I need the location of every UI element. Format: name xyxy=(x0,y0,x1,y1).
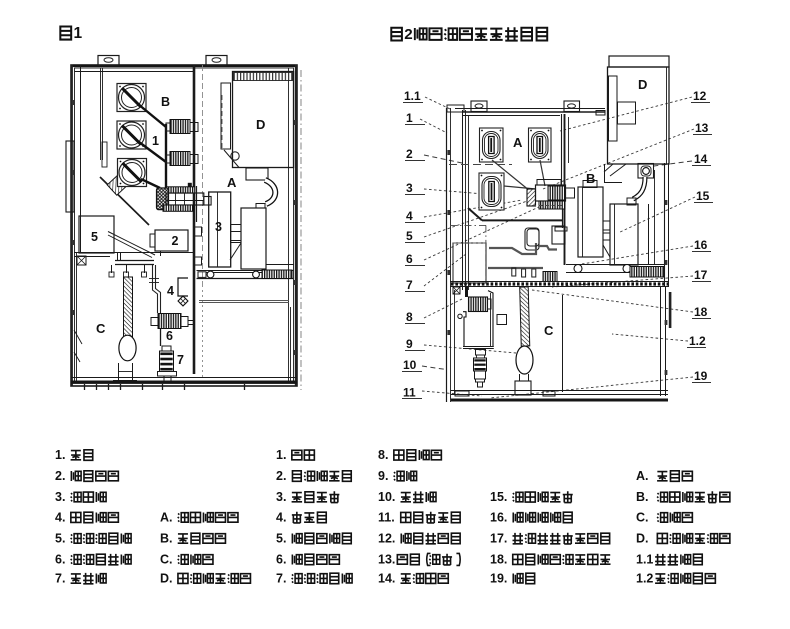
svg-text:1.2: 1.2 xyxy=(689,334,706,348)
svg-text:10.: 10. xyxy=(378,490,395,504)
svg-text:12.: 12. xyxy=(378,532,395,546)
svg-text:17: 17 xyxy=(694,268,708,282)
svg-text:D.: D. xyxy=(160,572,173,586)
svg-text:D.: D. xyxy=(636,532,649,546)
svg-text:14.: 14. xyxy=(378,572,395,586)
svg-text:19: 19 xyxy=(694,369,708,383)
svg-text:15.: 15. xyxy=(490,490,507,504)
svg-text:3.: 3. xyxy=(276,490,286,504)
svg-text:A: A xyxy=(227,175,237,190)
svg-text:1.: 1. xyxy=(276,448,286,462)
svg-text:1: 1 xyxy=(406,111,413,125)
svg-text:3: 3 xyxy=(406,181,413,195)
svg-text:A: A xyxy=(513,135,523,150)
svg-text:D: D xyxy=(256,117,265,132)
svg-text:A.: A. xyxy=(636,469,649,483)
svg-text:6.: 6. xyxy=(276,553,286,567)
svg-text:8: 8 xyxy=(406,310,413,324)
svg-text:5.: 5. xyxy=(276,532,286,546)
svg-text:19.: 19. xyxy=(490,572,507,586)
svg-text:1.1: 1.1 xyxy=(636,553,653,567)
svg-text:5.: 5. xyxy=(55,532,65,546)
svg-text:7: 7 xyxy=(177,353,184,367)
svg-text:5: 5 xyxy=(91,230,98,244)
svg-text:B: B xyxy=(586,171,595,186)
svg-text:7.: 7. xyxy=(55,572,65,586)
svg-text:C.: C. xyxy=(636,511,649,525)
svg-text:2: 2 xyxy=(404,26,412,43)
svg-text:14: 14 xyxy=(694,152,708,166)
svg-text:A.: A. xyxy=(160,511,173,525)
svg-text:7.: 7. xyxy=(276,572,286,586)
svg-text:1.: 1. xyxy=(55,448,65,462)
svg-text:B: B xyxy=(161,95,170,109)
svg-text:6: 6 xyxy=(406,252,413,266)
svg-text:1.1: 1.1 xyxy=(404,89,421,103)
svg-text:17.: 17. xyxy=(490,532,507,546)
svg-text:18.: 18. xyxy=(490,553,507,567)
svg-text:B.: B. xyxy=(160,532,173,546)
svg-text:10: 10 xyxy=(403,358,417,372)
svg-text:13.: 13. xyxy=(378,553,395,567)
svg-text:11: 11 xyxy=(403,386,416,400)
svg-text:13: 13 xyxy=(695,121,709,135)
svg-text:D: D xyxy=(638,77,647,92)
svg-text:15: 15 xyxy=(696,189,710,203)
svg-text:2: 2 xyxy=(406,147,413,161)
svg-text:5: 5 xyxy=(406,229,413,243)
svg-text:4: 4 xyxy=(167,284,174,298)
svg-text:3: 3 xyxy=(215,220,222,234)
svg-text:C: C xyxy=(544,323,554,338)
svg-text:16.: 16. xyxy=(490,511,507,525)
svg-text:3.: 3. xyxy=(55,490,65,504)
svg-text:9: 9 xyxy=(406,337,413,351)
svg-text:7: 7 xyxy=(406,278,413,292)
svg-text:4.: 4. xyxy=(55,511,65,525)
svg-text:C.: C. xyxy=(160,553,173,567)
svg-text:2: 2 xyxy=(172,234,179,248)
svg-text:8.: 8. xyxy=(378,448,388,462)
svg-text:1.2: 1.2 xyxy=(636,572,653,586)
svg-text:B.: B. xyxy=(636,490,649,504)
svg-text:2.: 2. xyxy=(276,469,286,483)
svg-text:16: 16 xyxy=(694,238,708,252)
svg-text:9.: 9. xyxy=(378,469,388,483)
svg-text:6.: 6. xyxy=(55,553,65,567)
svg-text:11.: 11. xyxy=(378,511,395,525)
svg-text:6: 6 xyxy=(166,329,173,343)
svg-text:C: C xyxy=(96,321,106,336)
svg-text:12: 12 xyxy=(693,89,707,103)
svg-text:4.: 4. xyxy=(276,511,286,525)
svg-text:2.: 2. xyxy=(55,469,65,483)
svg-text:1: 1 xyxy=(152,134,159,148)
svg-text:18: 18 xyxy=(694,305,708,319)
svg-text:1: 1 xyxy=(74,25,83,42)
svg-text:4: 4 xyxy=(406,209,413,223)
